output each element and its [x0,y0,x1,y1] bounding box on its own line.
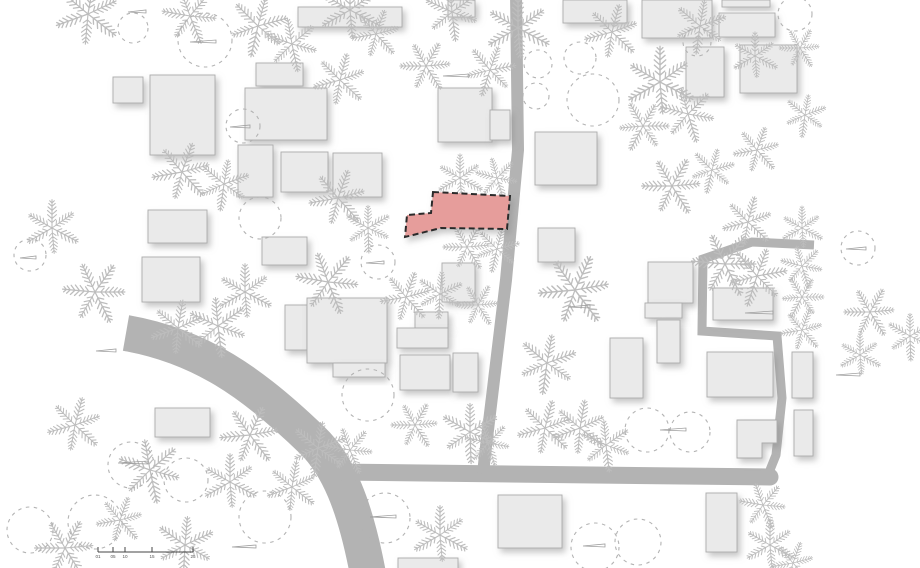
palm-tree [512,394,579,461]
palm-tree [218,264,273,318]
palm-tree [633,145,713,225]
palm-tree [880,304,920,368]
building-footprint [535,132,597,185]
flag-marker [20,256,36,259]
building-footprint [150,75,215,155]
bush-tree [239,197,281,239]
building-footprint [262,237,307,265]
palm-tree [511,325,586,401]
building-footprint [113,77,143,103]
building-footprint [398,558,458,568]
palm-tree [42,391,109,458]
palm-tree [91,489,151,548]
palm-tree [686,143,740,198]
bush-tree [670,412,710,452]
scale-bar-label: 25 [190,554,196,559]
building-footprint [238,145,273,197]
building-footprint [142,257,200,302]
flag-marker [128,10,146,13]
flag-marker [583,544,605,547]
palm-tree [782,276,824,319]
building-footprint [307,298,387,363]
flag-marker [660,428,686,431]
palm-tree [51,0,126,50]
bush-tree [778,0,812,31]
palm-tree [839,333,882,375]
bush-tree [68,495,122,549]
scale-bar: 0105101525 [95,547,196,559]
palm-tree [384,393,448,456]
building-footprint [707,352,773,397]
building-footprint [610,338,643,398]
horizontal-road [333,472,770,477]
bush-tree [564,42,596,74]
building-footprint [453,353,478,392]
palm-tree [53,248,140,335]
bush-tree [523,83,549,109]
bush-tree [571,523,619,568]
building-footprint [722,0,770,7]
palm-tree [153,0,230,54]
scale-bar-label: 01 [95,554,101,559]
palm-tree [412,506,469,562]
bush-tree [567,74,619,126]
building-footprint [657,320,680,363]
flag-marker [370,515,396,518]
palm-tree [25,200,80,254]
bush-tree [7,507,53,553]
site-plan-svg: 0105101525 [0,0,920,568]
building-footprint [333,363,385,377]
building-footprint [645,303,682,318]
building-footprint [400,355,450,390]
building-footprint [538,228,575,262]
palm-tree [767,535,822,568]
building-footprint [794,410,813,456]
bush-tree [524,50,552,78]
flag-marker [846,247,866,250]
palm-tree [728,119,788,178]
palm-tree [776,302,831,356]
palm-tree [837,277,906,346]
flag-marker [232,545,256,548]
flag-marker [366,261,384,264]
building-footprint [498,495,562,548]
building-footprint [706,493,737,552]
bush-tree [108,442,154,488]
palm-tree [108,425,196,513]
bush-tree [239,491,291,543]
site-plan-canvas: 0105101525 [0,0,920,568]
building-footprint [490,110,510,140]
scale-bar-label: 10 [122,554,128,559]
palm-tree [224,0,295,62]
building-footprint [397,328,448,348]
building-footprint [648,262,693,303]
building-footprint [719,13,775,37]
bush-tree [615,519,661,565]
palm-tree [148,506,226,568]
scale-bar-label: 15 [149,554,155,559]
flag-marker [118,461,148,464]
scale-bar-label: 05 [110,554,116,559]
palm-tree [549,395,613,458]
flag-marker [443,74,469,77]
building-footprint [245,88,327,140]
building-footprint [285,305,307,350]
building-footprint [148,210,207,243]
palm-tree [779,88,833,143]
building-footprint [792,352,813,398]
building-footprint [737,420,777,458]
building-footprint [155,408,210,437]
flag-marker [836,373,860,376]
flag-marker [96,349,116,352]
palm-tree [203,454,258,508]
building-footprint [281,152,328,192]
bush-tree [118,13,148,43]
